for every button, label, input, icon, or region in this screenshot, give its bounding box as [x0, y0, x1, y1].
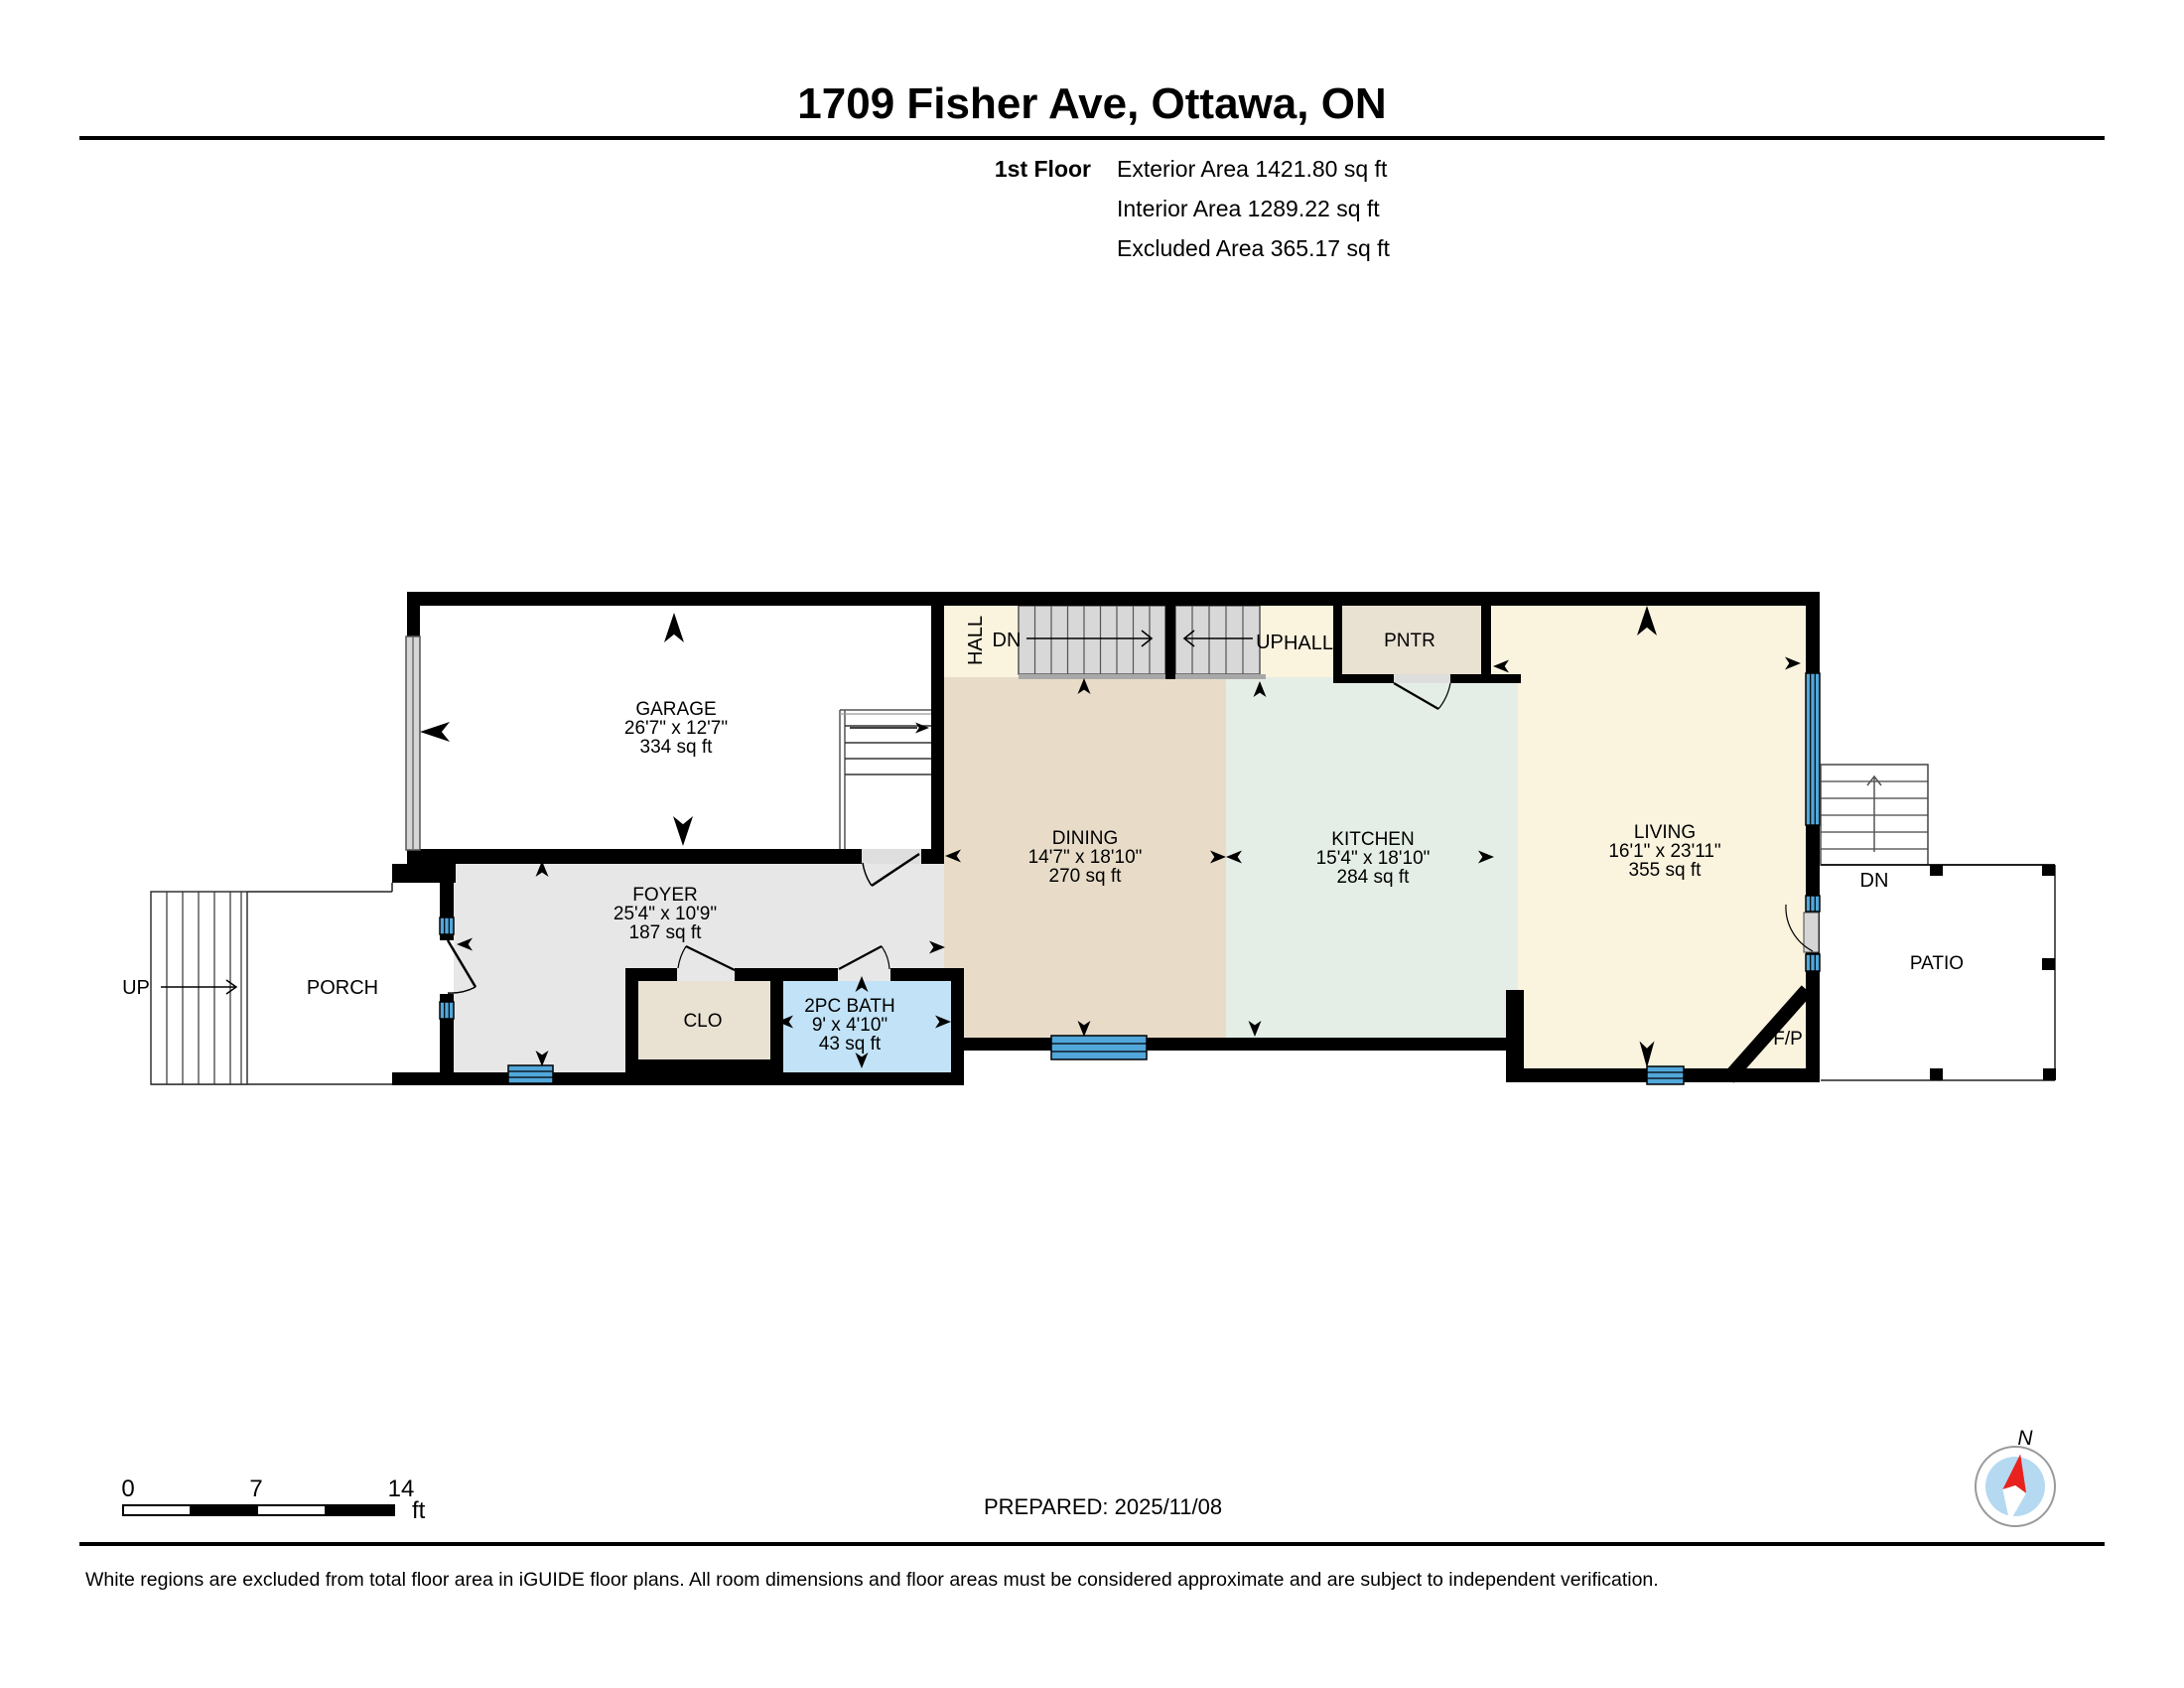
svg-text:GARAGE: GARAGE	[635, 699, 716, 720]
svg-text:0: 0	[121, 1476, 134, 1502]
svg-text:DINING: DINING	[1052, 828, 1119, 849]
svg-text:Interior Area 1289.22 sq ft: Interior Area 1289.22 sq ft	[1117, 196, 1380, 221]
svg-text:187 sq ft: 187 sq ft	[629, 922, 703, 943]
svg-text:HALL: HALL	[1284, 633, 1333, 654]
svg-text:KITCHEN: KITCHEN	[1331, 829, 1414, 850]
svg-text:N: N	[2017, 1427, 2033, 1450]
svg-text:1st Floor: 1st Floor	[995, 156, 1091, 182]
svg-text:PREPARED: 2025/11/08: PREPARED: 2025/11/08	[984, 1494, 1222, 1519]
svg-text:43 sq ft: 43 sq ft	[819, 1034, 882, 1055]
svg-text:FOYER: FOYER	[632, 885, 697, 906]
svg-text:2PC BATH: 2PC BATH	[804, 996, 895, 1017]
svg-text:DN: DN	[993, 630, 1022, 651]
svg-text:Exterior Area 1421.80 sq ft: Exterior Area 1421.80 sq ft	[1117, 156, 1388, 182]
svg-text:14: 14	[388, 1476, 415, 1502]
svg-text:284 sq ft: 284 sq ft	[1337, 867, 1411, 888]
svg-text:LIVING: LIVING	[1634, 822, 1696, 843]
svg-text:15'4" x 18'10": 15'4" x 18'10"	[1316, 848, 1431, 869]
svg-text:14'7" x 18'10": 14'7" x 18'10"	[1028, 847, 1143, 868]
svg-text:355 sq ft: 355 sq ft	[1629, 860, 1703, 881]
svg-text:PATIO: PATIO	[1910, 953, 1964, 974]
svg-text:334 sq ft: 334 sq ft	[640, 737, 714, 758]
svg-text:UP: UP	[1256, 632, 1284, 653]
svg-text:Excluded Area 365.17 sq ft: Excluded Area 365.17 sq ft	[1117, 235, 1391, 261]
svg-text:25'4" x 10'9": 25'4" x 10'9"	[614, 904, 717, 924]
svg-text:F/P: F/P	[1773, 1029, 1803, 1050]
svg-text:DN: DN	[1860, 870, 1889, 892]
svg-text:CLO: CLO	[683, 1011, 722, 1032]
svg-text:ft: ft	[412, 1497, 426, 1524]
svg-text:16'1" x 23'11": 16'1" x 23'11"	[1608, 841, 1720, 862]
svg-text:1709 Fisher Ave, Ottawa, ON: 1709 Fisher Ave, Ottawa, ON	[797, 79, 1386, 128]
svg-text:9' x 4'10": 9' x 4'10"	[812, 1015, 887, 1036]
svg-text:270 sq ft: 270 sq ft	[1049, 866, 1123, 887]
svg-text:HALL: HALL	[965, 616, 987, 665]
svg-text:26'7" x 12'7": 26'7" x 12'7"	[624, 718, 728, 739]
svg-text:White regions are excluded fro: White regions are excluded from total fl…	[85, 1569, 1659, 1591]
svg-text:PORCH: PORCH	[307, 977, 378, 999]
svg-text:PNTR: PNTR	[1384, 631, 1435, 651]
svg-text:7: 7	[249, 1476, 262, 1502]
svg-text:UP: UP	[122, 977, 150, 999]
